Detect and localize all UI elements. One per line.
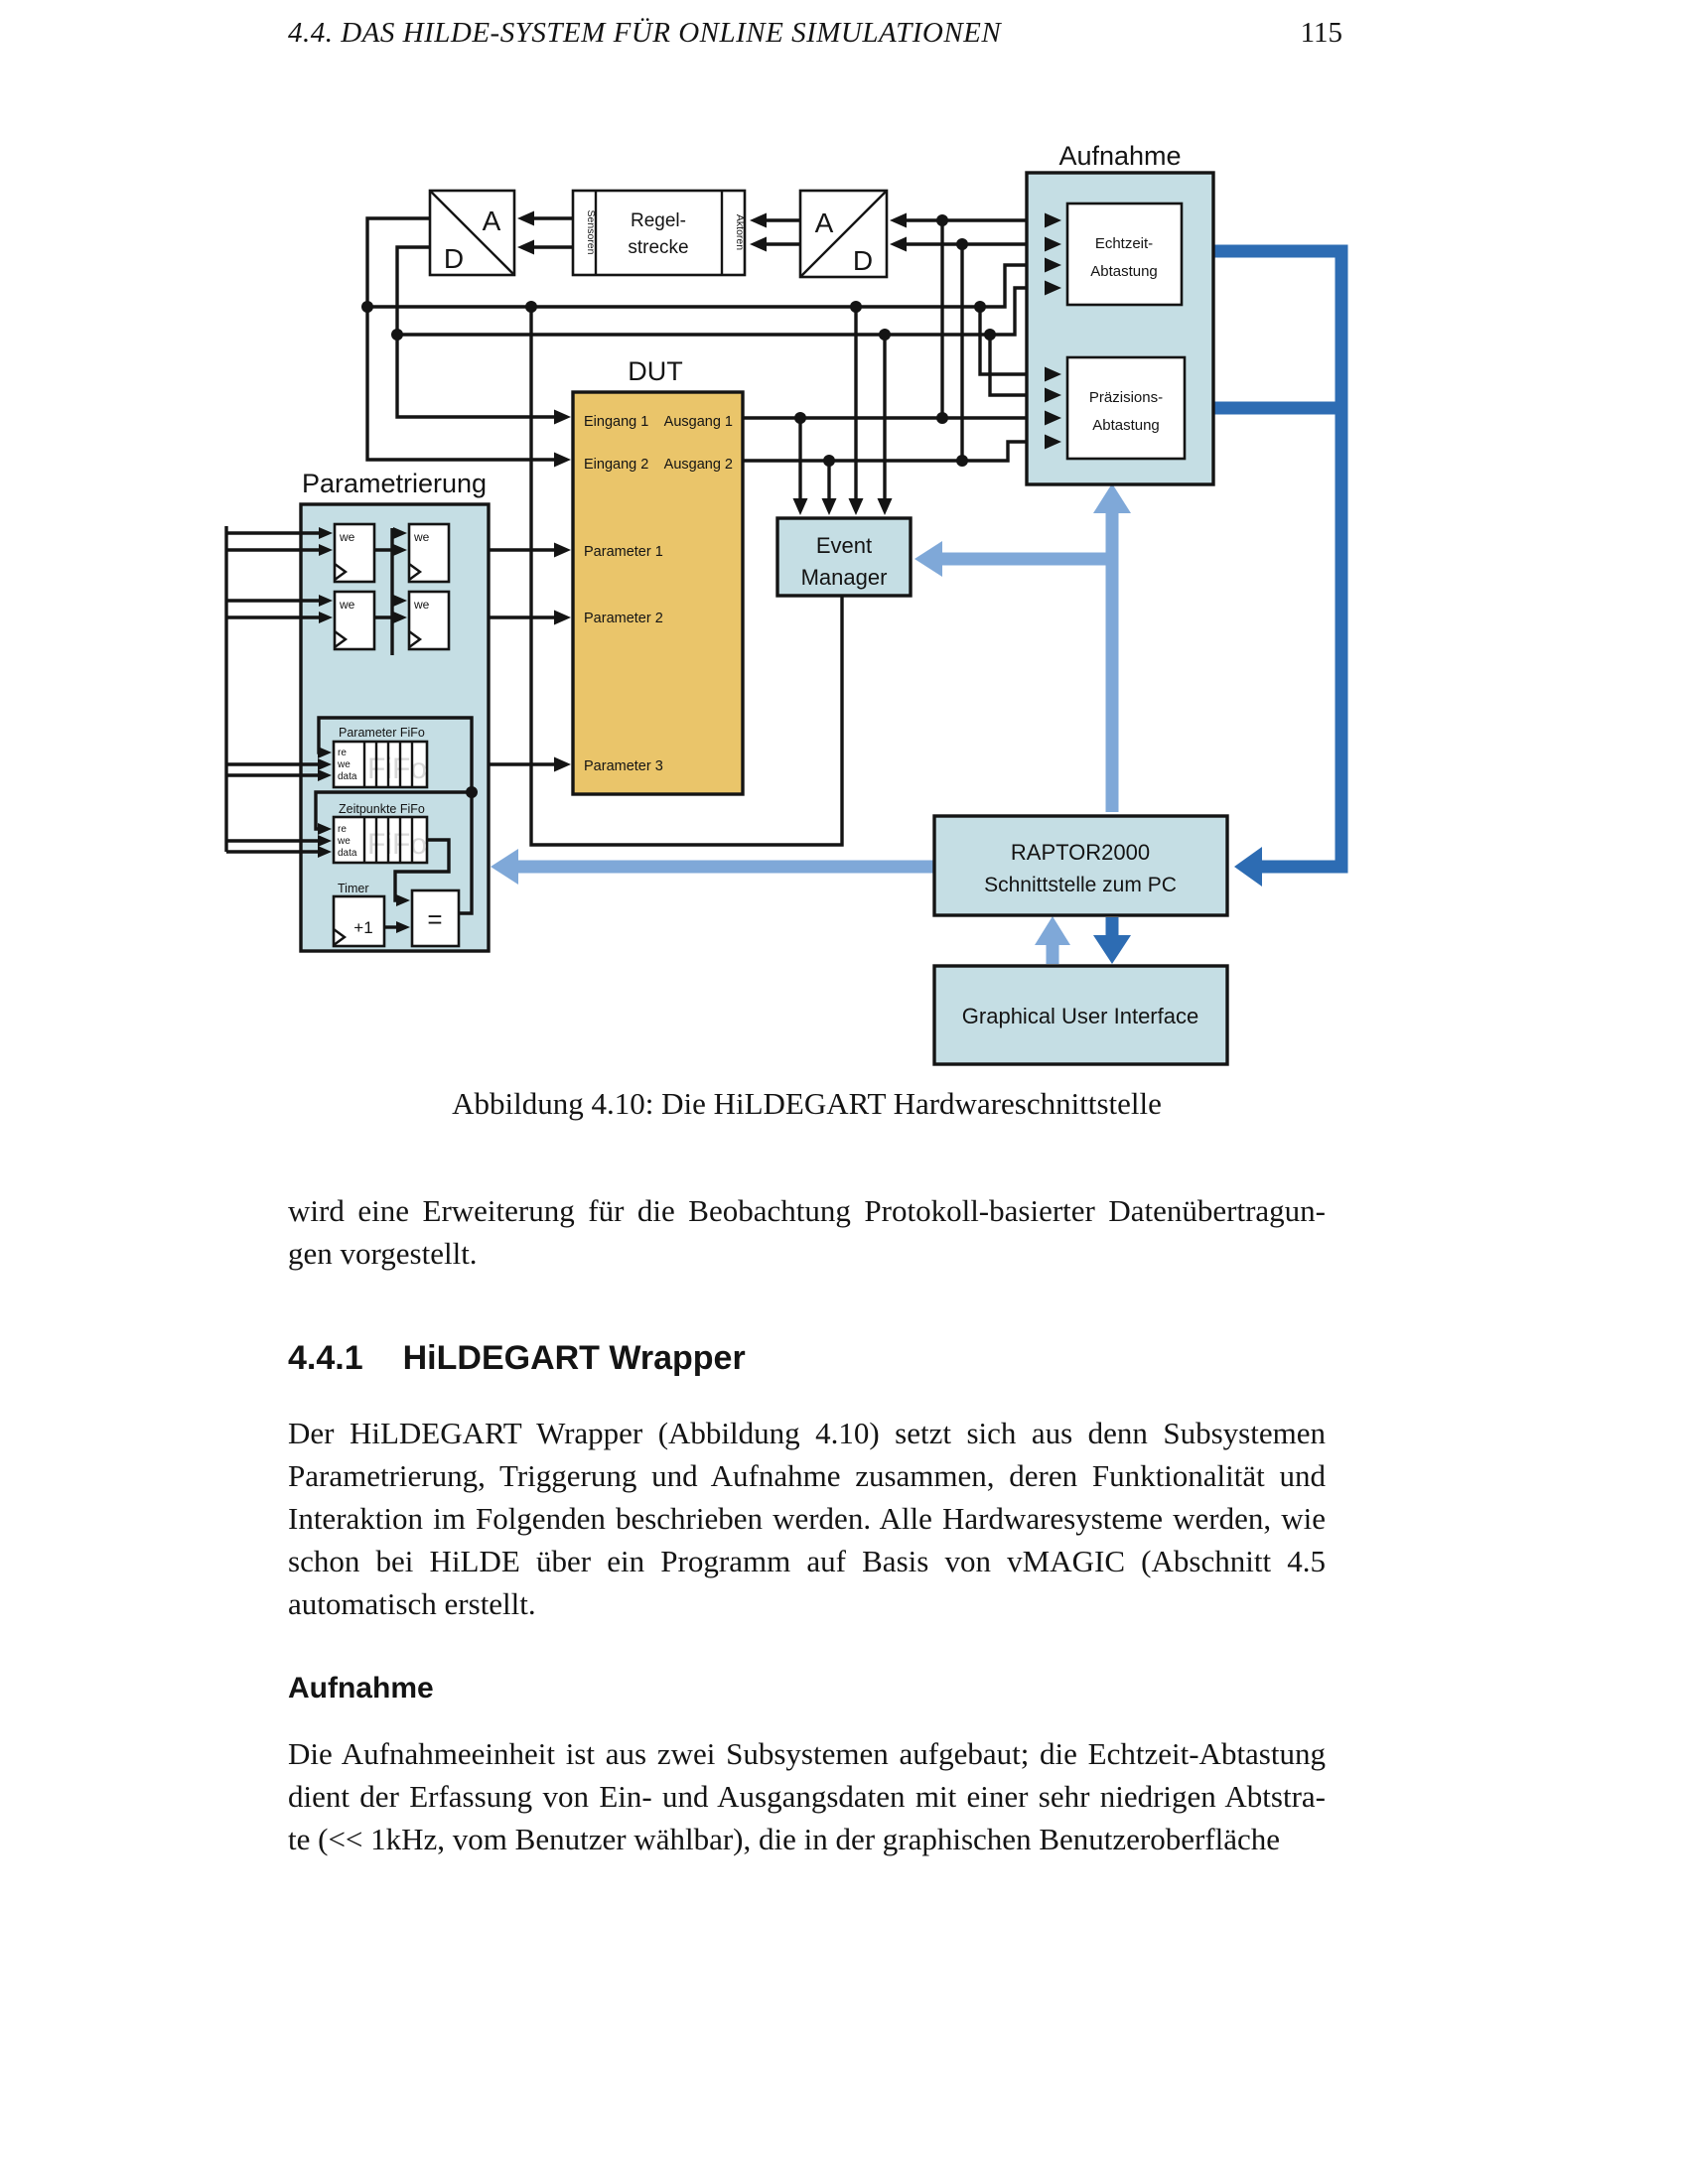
we-label: we bbox=[413, 598, 430, 612]
dut-title: DUT bbox=[628, 356, 683, 386]
document-page: 4.4. DAS HILDE-SYSTEM FÜR ONLINE SIMULAT… bbox=[0, 0, 1688, 2184]
junction-dot bbox=[823, 455, 835, 467]
section-number: 4.4.1 bbox=[288, 1339, 363, 1377]
ad-converter-left: A D bbox=[430, 191, 514, 275]
arrowhead-into-raptor bbox=[1234, 847, 1262, 887]
regelstrecke-block: Regel- strecke Sensoren Aktoren bbox=[573, 191, 746, 275]
junction-dot bbox=[361, 301, 373, 313]
text-line: dient der Erfassung von Ein- und Ausgang… bbox=[288, 1775, 1326, 1818]
arrowhead bbox=[793, 498, 808, 515]
event-manager-label-2: Manager bbox=[801, 565, 888, 590]
arrowhead bbox=[517, 211, 534, 226]
raptor-label-1: RAPTOR2000 bbox=[1011, 840, 1150, 865]
junction-dot bbox=[974, 301, 986, 313]
subsection-heading: Aufnahme bbox=[288, 1672, 434, 1706]
arrowhead bbox=[890, 213, 907, 228]
we-label: we bbox=[413, 530, 430, 544]
text-line: automatisch erstellt. bbox=[288, 1582, 1326, 1625]
timer-plus1-label: +1 bbox=[353, 918, 372, 937]
junction-dot bbox=[879, 329, 891, 341]
arrowhead bbox=[878, 498, 893, 515]
ad-right-d-label: D bbox=[853, 245, 873, 276]
dut-eingang2-label: Eingang 2 bbox=[584, 457, 648, 473]
text-line: Der HiLDEGART Wrapper (Abbildung 4.10) s… bbox=[288, 1412, 1326, 1454]
arrowhead bbox=[750, 213, 767, 228]
we-label: we bbox=[339, 598, 355, 612]
timer-title: Timer bbox=[338, 882, 368, 895]
data-label: data bbox=[338, 848, 357, 859]
junction-dot bbox=[525, 301, 537, 313]
text-line: te (<< 1kHz, vom Benutzer wählbar), die … bbox=[288, 1818, 1326, 1860]
figure-caption: Abbildung 4.10: Die HiLDEGART Hardwaresc… bbox=[288, 1086, 1326, 1122]
dut-ausgang1-label: Ausgang 1 bbox=[664, 414, 733, 430]
arrowhead-into-parametrierung bbox=[491, 849, 518, 885]
paragraph-aufnahme: Die Aufnahmeeinheit ist aus zwei Subsyst… bbox=[288, 1732, 1326, 1860]
arrowhead-into-aufnahme bbox=[1093, 483, 1131, 513]
junction-dot bbox=[936, 214, 948, 226]
comparator-label: = bbox=[427, 904, 442, 934]
junction-dot bbox=[794, 412, 806, 424]
dut-eingang1-label: Eingang 1 bbox=[584, 414, 648, 430]
wire bbox=[743, 442, 1045, 461]
aktoren-label: Aktoren bbox=[734, 214, 746, 250]
arrowhead-into-eventmanager bbox=[914, 541, 942, 577]
raptor-label-2: Schnittstelle zum PC bbox=[984, 874, 1177, 896]
paragraph-wrapper: Der HiLDEGART Wrapper (Abbildung 4.10) s… bbox=[288, 1412, 1326, 1625]
junction-dot bbox=[956, 238, 968, 250]
raptor-box bbox=[934, 816, 1227, 915]
section-heading: 4.4.1HiLDEGART Wrapper bbox=[288, 1339, 746, 1378]
parametrierung-title: Parametrierung bbox=[302, 469, 487, 498]
we-signal-label: we bbox=[337, 759, 351, 770]
re-label: re bbox=[338, 748, 347, 758]
gui-label: Graphical User Interface bbox=[962, 1004, 1198, 1028]
aufnahme-title: Aufnahme bbox=[1058, 141, 1181, 171]
arrowhead-into-raptor-from-gui bbox=[1035, 916, 1070, 945]
dut-parameter1-label: Parameter 1 bbox=[584, 544, 663, 560]
ad-left-a-label: A bbox=[483, 205, 501, 236]
text-line: Parametrierung, Triggerung und Aufnahme … bbox=[288, 1454, 1326, 1497]
arrowhead bbox=[554, 453, 571, 468]
regelstrecke-box bbox=[573, 191, 745, 275]
junction-dot bbox=[984, 329, 996, 341]
arrowhead bbox=[554, 757, 571, 772]
re-label: re bbox=[338, 824, 347, 835]
sensoren-label: Sensoren bbox=[585, 210, 597, 255]
arrowhead bbox=[554, 410, 571, 425]
section-title: HiLDEGART Wrapper bbox=[403, 1339, 746, 1377]
arrowhead bbox=[517, 240, 534, 255]
arrowhead bbox=[822, 498, 837, 515]
event-manager-label-1: Event bbox=[816, 533, 872, 558]
wire bbox=[397, 288, 1045, 335]
text-line: schon bei HiLDE über ein Programm auf Ba… bbox=[288, 1540, 1326, 1582]
text-line: wird eine Erweiterung für die Beobachtun… bbox=[288, 1189, 1326, 1232]
ad-converter-right: A D bbox=[800, 191, 887, 277]
parameter-fifo-title: Parameter FiFo bbox=[339, 726, 425, 740]
junction-dot bbox=[466, 786, 478, 798]
we-signal-label: we bbox=[337, 836, 351, 847]
arrowhead-into-gui bbox=[1093, 935, 1131, 964]
regelstrecke-label-2: strecke bbox=[628, 237, 688, 258]
dut-box bbox=[573, 392, 743, 794]
echtzeit-label-1: Echtzeit- bbox=[1095, 235, 1153, 252]
text-line: gen vorgestellt. bbox=[288, 1232, 1326, 1275]
ad-left-d-label: D bbox=[444, 243, 464, 274]
zeitpunkte-fifo-title: Zeitpunkte FiFo bbox=[339, 802, 425, 816]
text-line: Die Aufnahmeeinheit ist aus zwei Subsyst… bbox=[288, 1732, 1326, 1775]
paragraph-intro: wird eine Erweiterung für die Beobachtun… bbox=[288, 1189, 1326, 1275]
junction-dot bbox=[850, 301, 862, 313]
arrowhead bbox=[750, 237, 767, 252]
praezisions-label-2: Abtastung bbox=[1092, 417, 1160, 434]
we-label: we bbox=[339, 530, 355, 544]
junction-dot bbox=[391, 329, 403, 341]
echtzeit-abtastung-box bbox=[1067, 204, 1182, 305]
junction-dot bbox=[936, 412, 948, 424]
ad-right-a-label: A bbox=[815, 207, 834, 238]
echtzeit-label-2: Abtastung bbox=[1090, 263, 1158, 280]
praezisions-label-1: Präzisions- bbox=[1089, 389, 1163, 406]
dut-ausgang2-label: Ausgang 2 bbox=[664, 457, 733, 473]
arrowhead bbox=[849, 498, 864, 515]
dut-parameter2-label: Parameter 2 bbox=[584, 611, 663, 626]
dut-parameter3-label: Parameter 3 bbox=[584, 758, 663, 774]
praezisions-abtastung-box bbox=[1067, 357, 1185, 459]
data-label: data bbox=[338, 771, 357, 782]
arrowhead bbox=[554, 611, 571, 625]
arrowhead bbox=[890, 237, 907, 252]
regelstrecke-label-1: Regel- bbox=[631, 210, 686, 231]
hardware-diagram: A D A D Regel- strecke Sensoren Aktoren … bbox=[0, 0, 1688, 1097]
text-line: Interaktion im Folgenden beschrieben wer… bbox=[288, 1497, 1326, 1540]
arrowhead bbox=[554, 543, 571, 558]
junction-dot bbox=[956, 455, 968, 467]
